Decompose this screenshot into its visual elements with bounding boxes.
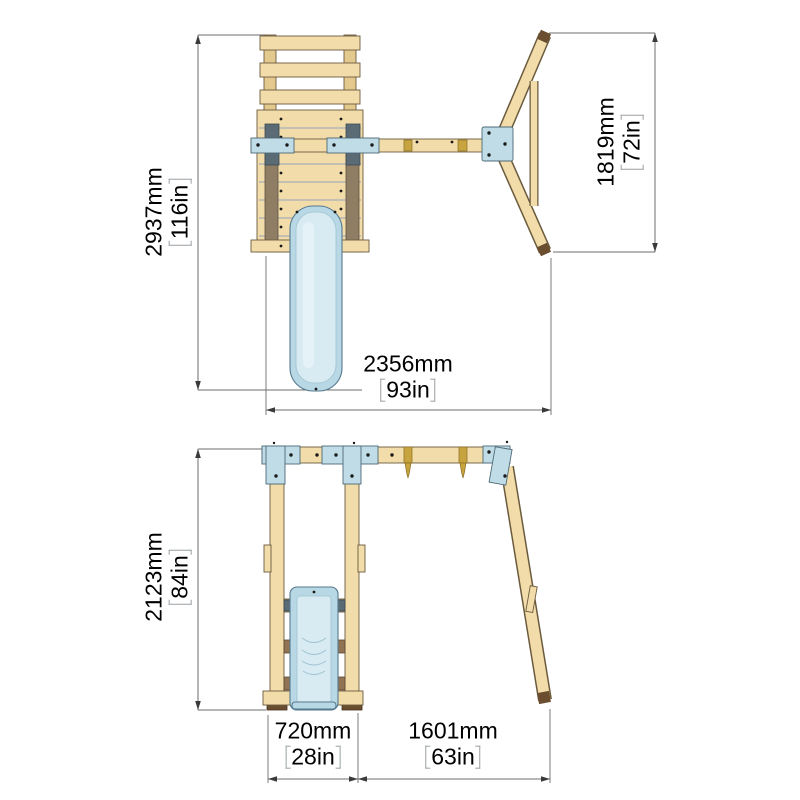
dim-plan-spread: 1819mm 72in <box>594 97 645 186</box>
dim-front-tower-width: 720mm 28in <box>275 719 352 770</box>
plan-swing-hanger-left <box>404 140 412 151</box>
bracket-open <box>168 240 191 245</box>
dim-plan-width-mm: 2356mm <box>363 352 452 377</box>
bracket-close <box>336 745 341 768</box>
bracket-close <box>168 549 191 554</box>
dim-front-swing-bay-width-in: 63in <box>431 745 474 770</box>
bracket-open <box>285 745 290 768</box>
bracket-open <box>380 378 385 401</box>
dim-plan-depth-in: 116in <box>168 185 193 240</box>
bracket-open <box>425 745 430 768</box>
dim-front-swing-bay-width: 1601mm 63in <box>408 719 497 770</box>
dim-front-swing-bay-width-mm: 1601mm <box>408 719 497 744</box>
dim-plan-spread-mm: 1819mm <box>594 97 619 186</box>
bracket-open <box>620 165 643 170</box>
dim-plan-depth-mm: 2937mm <box>142 167 167 256</box>
front-swing-hanger-left <box>404 447 412 478</box>
dimension-diagram: 2937mm 116in 1819mm 72in 2356mm 93in 212… <box>0 0 800 800</box>
bracket-open <box>168 600 191 605</box>
dim-plan-width: 2356mm 93in <box>363 352 452 403</box>
dim-plan-width-in: 93in <box>386 378 429 403</box>
front-swing-hanger-right <box>459 447 467 478</box>
front-slide <box>290 587 338 710</box>
plan-apex-bracket <box>482 127 513 161</box>
bracket-close <box>431 378 436 401</box>
dim-plan-depth: 2937mm 116in <box>142 167 193 256</box>
front-aframe-leg <box>507 467 545 703</box>
dim-front-height: 2123mm 84in <box>142 532 193 621</box>
plan-ladder <box>260 35 360 112</box>
bracket-close <box>620 114 643 119</box>
plan-swing-hanger-right <box>458 140 467 151</box>
bracket-close <box>476 745 481 768</box>
front-dim-height-lines <box>195 449 266 710</box>
front-left-post <box>270 462 284 705</box>
dim-front-height-in: 84in <box>168 555 193 598</box>
dim-front-height-mm: 2123mm <box>142 532 167 621</box>
plan-slide <box>290 206 342 391</box>
dim-front-tower-width-mm: 720mm <box>275 719 352 744</box>
dim-front-tower-width-in: 28in <box>291 745 334 770</box>
bracket-close <box>168 179 191 184</box>
front-right-post <box>345 462 359 705</box>
dim-plan-spread-in: 72in <box>620 120 645 163</box>
